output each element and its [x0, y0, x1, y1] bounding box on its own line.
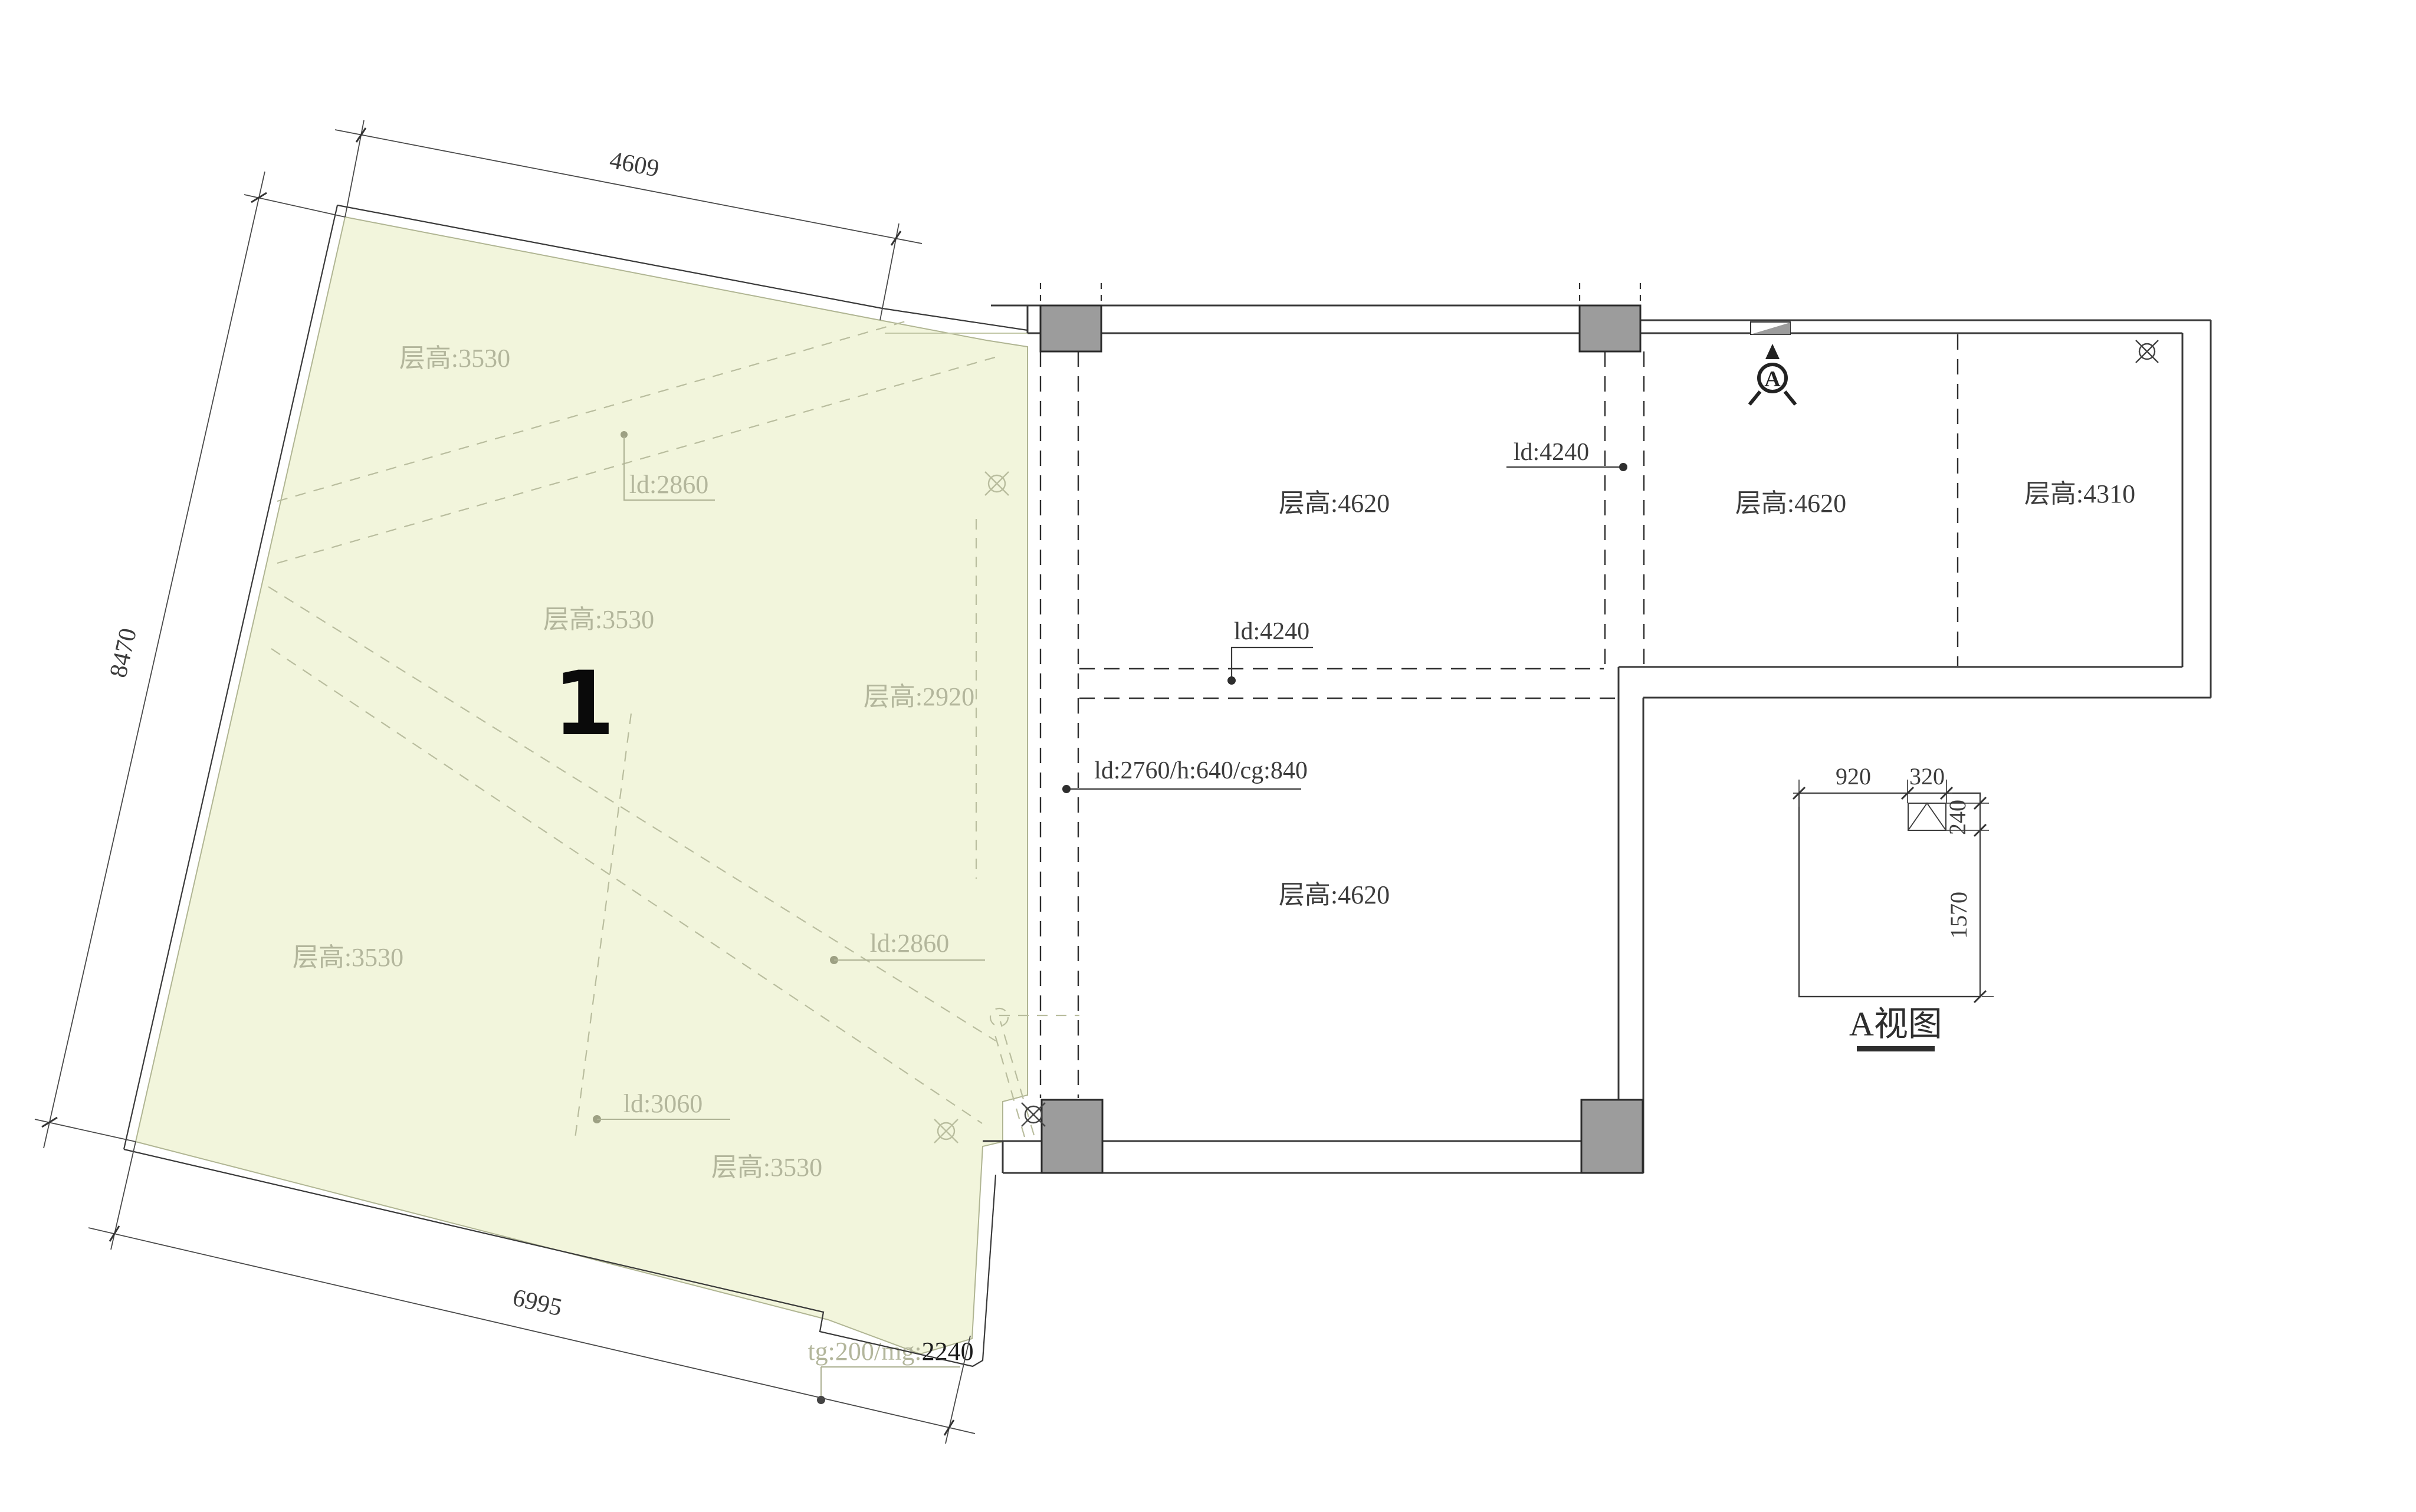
column-bottom-mid	[1581, 1100, 1643, 1173]
detail-view-A: 920 320 240 1570 A视图	[1793, 763, 1994, 1051]
right-plan-dashed-axes	[1040, 283, 1958, 1098]
view-marker-A[interactable]: A	[1749, 344, 1795, 405]
ceiling-leader-mid: ld:4240	[1227, 618, 1313, 685]
room-label-top-right: 层高:4620	[1735, 489, 1846, 518]
detail-dim-1570: 1570	[1945, 892, 1972, 939]
floor-plan-page: 层高:3530 层高:3530 层高:2920 层高:3530 层高:3530 …	[0, 0, 2416, 1512]
ceiling-leader-beam: ld:2760/h:640/cg:840	[1062, 757, 1308, 793]
svg-text:ld:2860: ld:2860	[870, 929, 949, 958]
column-top-mid	[1580, 305, 1640, 351]
svg-text:ld:4240: ld:4240	[1234, 618, 1309, 645]
svg-text:ld:3060: ld:3060	[623, 1089, 703, 1118]
column-top-left	[1040, 305, 1101, 351]
svg-text:4609: 4609	[608, 147, 661, 183]
zone-1: 层高:3530 层高:3530 层高:2920 层高:3530 层高:3530 …	[136, 217, 1079, 1404]
detail-dim-920: 920	[1836, 763, 1871, 790]
zone-threshold-note: tg:200/mg:2240	[807, 1337, 973, 1404]
lamp-symbol-zone-bottom	[934, 1119, 958, 1143]
room-label-bottom: 层高:4620	[1279, 880, 1390, 909]
detail-dim-240: 240	[1944, 800, 1971, 835]
zone-number: 1	[553, 653, 615, 755]
svg-text:ld:2860: ld:2860	[629, 470, 708, 499]
room-label-far-right: 层高:4310	[2024, 479, 2135, 508]
detail-dim-320: 320	[1909, 763, 1945, 790]
zone-label-height-mid: 层高:3530	[543, 605, 654, 634]
column-bottom-left	[1042, 1100, 1102, 1173]
room-label-top-left: 层高:4620	[1279, 489, 1390, 518]
lamp-symbol-zone-right	[985, 472, 1009, 495]
slope-marker	[1751, 322, 1790, 334]
svg-text:6995: 6995	[510, 1284, 564, 1322]
detail-title: A视图	[1849, 1005, 1942, 1043]
zone-label-height-bottom-mid: 层高:3530	[711, 1153, 822, 1182]
svg-text:8470: 8470	[105, 626, 142, 680]
detail-title-underline	[1857, 1046, 1935, 1051]
zone-label-height-top: 层高:3530	[399, 344, 510, 373]
view-marker-label: A	[1764, 367, 1781, 392]
ceiling-leader-top: ld:4240	[1506, 439, 1627, 471]
zone-label-height-right: 层高:2920	[864, 682, 974, 711]
lamp-symbol-door	[1022, 1103, 1045, 1126]
zone-label-height-bottom-left: 层高:3530	[293, 943, 403, 972]
svg-text:ld:4240: ld:4240	[1514, 439, 1589, 466]
right-plan-walls	[983, 305, 2211, 1173]
floor-plan-canvas: 层高:3530 层高:3530 层高:2920 层高:3530 层高:3530 …	[0, 0, 2416, 1512]
lamp-symbol-top-right	[2136, 340, 2158, 363]
structural-columns	[1040, 305, 1643, 1173]
svg-text:ld:2760/h:640/cg:840: ld:2760/h:640/cg:840	[1094, 757, 1308, 784]
